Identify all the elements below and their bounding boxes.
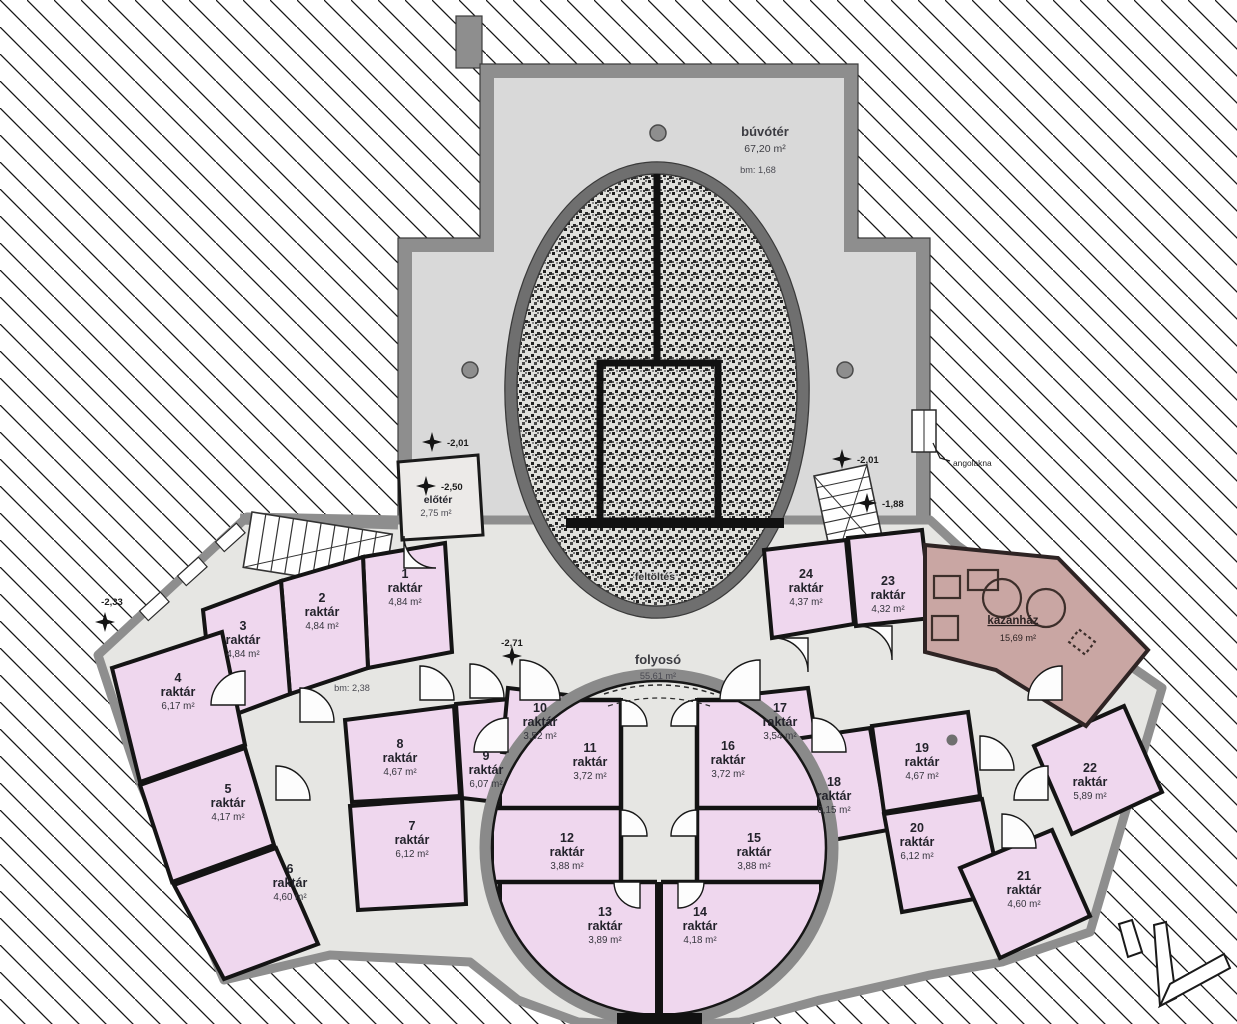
svg-text:5: 5 (225, 782, 232, 796)
column (837, 362, 853, 378)
svg-text:4,84 m²: 4,84 m² (226, 649, 260, 660)
svg-text:22: 22 (1083, 761, 1097, 775)
svg-text:1: 1 (402, 567, 409, 581)
svg-text:4,60 m²: 4,60 m² (1007, 899, 1041, 910)
svg-text:4,84 m²: 4,84 m² (305, 621, 339, 632)
svg-text:raktár: raktár (383, 751, 418, 765)
folyoso-area: 55,61 m² (640, 671, 676, 681)
svg-text:11: 11 (583, 741, 596, 755)
svg-text:3,72 m²: 3,72 m² (711, 769, 745, 780)
svg-text:5,89 m²: 5,89 m² (1073, 791, 1107, 802)
svg-text:raktár: raktár (273, 876, 308, 890)
svg-text:raktár: raktár (550, 845, 585, 859)
svg-text:8: 8 (397, 737, 404, 751)
marker-201-left: -2,01 (447, 438, 469, 449)
svg-text:6,15 m²: 6,15 m² (817, 805, 851, 816)
svg-text:raktár: raktár (683, 919, 718, 933)
kazanhaz-area: 15,69 m² (1000, 633, 1036, 643)
svg-text:10: 10 (533, 701, 547, 715)
svg-text:raktár: raktár (211, 796, 246, 810)
svg-text:9: 9 (483, 749, 490, 763)
svg-text:4,17 m²: 4,17 m² (211, 812, 245, 823)
svg-text:raktár: raktár (900, 835, 935, 849)
svg-text:raktár: raktár (305, 605, 340, 619)
floor-plan-page: 1raktár4,84 m² 2raktár4,84 m² 3raktár4,8… (0, 0, 1237, 1024)
svg-text:4,60 m²: 4,60 m² (273, 892, 307, 903)
svg-text:3,54 m²: 3,54 m² (763, 731, 797, 742)
svg-text:21: 21 (1017, 869, 1031, 883)
svg-text:20: 20 (910, 821, 924, 835)
buvoter-name: búvótér (741, 124, 789, 139)
svg-text:3,88 m²: 3,88 m² (737, 861, 771, 872)
svg-text:12: 12 (560, 831, 574, 845)
svg-text:2: 2 (319, 591, 326, 605)
svg-text:4,32 m²: 4,32 m² (871, 604, 905, 615)
kazanhaz-name: kazánház (987, 615, 1038, 627)
svg-text:4,37 m²: 4,37 m² (789, 597, 823, 608)
svg-text:6,07 m²: 6,07 m² (469, 779, 503, 790)
svg-text:raktár: raktár (905, 755, 940, 769)
marker-201-right: -2,01 (857, 455, 879, 466)
svg-text:14: 14 (693, 905, 707, 919)
svg-text:4,67 m²: 4,67 m² (383, 767, 417, 778)
svg-text:4: 4 (175, 671, 182, 685)
marker-188: -1,88 (882, 499, 904, 510)
svg-text:raktár: raktár (523, 715, 558, 729)
svg-text:3,88 m²: 3,88 m² (550, 861, 584, 872)
column (650, 125, 666, 141)
svg-text:raktár: raktár (1073, 775, 1108, 789)
svg-text:raktár: raktár (789, 581, 824, 595)
svg-text:4,67 m²: 4,67 m² (905, 771, 939, 782)
column (947, 735, 958, 746)
svg-text:6,12 m²: 6,12 m² (900, 851, 934, 862)
svg-text:raktár: raktár (1007, 883, 1042, 897)
svg-text:18: 18 (827, 775, 841, 789)
svg-text:raktár: raktár (161, 685, 196, 699)
folyoso-name: folyosó (635, 652, 681, 667)
angolakna-label: angolakna (953, 458, 992, 468)
marker-233: -2,33 (101, 597, 123, 608)
svg-text:16: 16 (721, 739, 735, 753)
buvoter-bm: bm: 1,68 (740, 165, 776, 175)
svg-text:raktár: raktár (469, 763, 504, 777)
svg-text:23: 23 (881, 574, 895, 588)
buvoter-area: 67,20 m² (744, 143, 786, 155)
svg-text:raktár: raktár (763, 715, 798, 729)
marker-250: -2,50 (441, 482, 463, 493)
svg-text:6,12 m²: 6,12 m² (395, 849, 429, 860)
svg-text:4,18 m²: 4,18 m² (683, 935, 717, 946)
svg-text:raktár: raktár (588, 919, 623, 933)
svg-text:3,72 m²: 3,72 m² (573, 771, 607, 782)
svg-text:4,84 m²: 4,84 m² (388, 597, 422, 608)
marker-271: -2,71 (501, 638, 523, 649)
folyoso-bm: bm: 2,38 (334, 683, 370, 693)
svg-text:13: 13 (598, 905, 612, 919)
wall-stub (456, 16, 482, 68)
eloter-name: előtér (424, 494, 453, 506)
svg-text:raktár: raktár (737, 845, 772, 859)
svg-text:raktár: raktár (395, 833, 430, 847)
svg-text:24: 24 (799, 567, 813, 581)
svg-text:6,17 m²: 6,17 m² (161, 701, 195, 712)
svg-text:raktár: raktár (817, 789, 852, 803)
svg-text:raktár: raktár (226, 633, 261, 647)
svg-text:17: 17 (773, 701, 787, 715)
svg-text:7: 7 (409, 819, 416, 833)
svg-text:19: 19 (915, 741, 929, 755)
svg-text:raktár: raktár (711, 753, 746, 767)
svg-text:raktár: raktár (871, 588, 906, 602)
svg-text:6: 6 (287, 862, 294, 876)
svg-text:15: 15 (747, 831, 761, 845)
svg-text:3: 3 (240, 619, 247, 633)
floor-plan-drawing: 1raktár4,84 m² 2raktár4,84 m² 3raktár4,8… (0, 0, 1237, 1024)
bottom-wall-strip (617, 1013, 702, 1024)
feltoltes-label: feltöltés (635, 571, 675, 583)
svg-text:3,52 m²: 3,52 m² (523, 731, 557, 742)
svg-text:3,89 m²: 3,89 m² (588, 935, 622, 946)
eloter-area: 2,75 m² (420, 508, 451, 518)
column (462, 362, 478, 378)
svg-text:raktár: raktár (388, 581, 423, 595)
svg-text:raktár: raktár (573, 755, 608, 769)
